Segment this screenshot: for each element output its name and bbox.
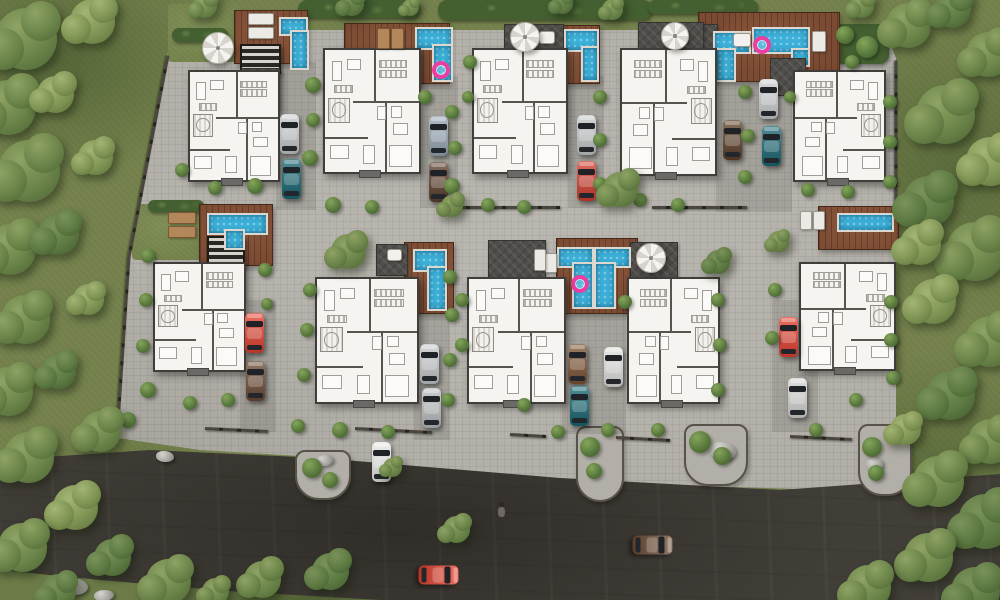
- car-hood-highlight: [579, 116, 595, 120]
- entrance-step: [834, 367, 856, 375]
- tree-canopy: [109, 534, 134, 559]
- interior-wall: [844, 264, 846, 308]
- car-roof: [572, 401, 587, 413]
- stair-rail: [694, 103, 708, 119]
- car-roof: [284, 174, 299, 186]
- car-windshield: [421, 352, 437, 358]
- furniture-kitchen-cabinets: [526, 60, 554, 68]
- furniture-bathroom-fixture: [818, 312, 829, 322]
- furniture-kitchen-cabinets: [634, 60, 662, 68]
- furniture-bathtub: [671, 375, 683, 394]
- bush-4: [247, 178, 263, 194]
- bush-32: [856, 36, 878, 58]
- patio-table: [733, 33, 751, 47]
- car-rear-window: [570, 376, 586, 380]
- bush-34: [845, 55, 859, 69]
- interior-wall: [190, 149, 230, 151]
- car-windshield: [569, 352, 585, 358]
- bush-76: [713, 447, 731, 465]
- bush-63: [651, 423, 665, 437]
- entrance-step: [359, 170, 381, 178]
- car-roof: [606, 362, 621, 374]
- car-rear-window: [248, 393, 264, 397]
- car-8: [759, 79, 778, 119]
- bush-15: [481, 198, 495, 212]
- tree-29: [882, 0, 934, 52]
- car-2: [282, 159, 301, 199]
- car-windshield: [247, 369, 263, 375]
- interior-wall: [155, 339, 196, 341]
- furniture-bed: [636, 375, 658, 397]
- car-16: [604, 347, 623, 387]
- car-roof: [579, 130, 594, 142]
- car-12: [420, 344, 439, 384]
- house-5[interactable]: [793, 70, 886, 182]
- house-1[interactable]: [188, 70, 280, 182]
- tree-14: [0, 428, 58, 488]
- sun-lounger: [812, 31, 826, 52]
- car-roof: [725, 135, 740, 147]
- car-rear-window: [636, 537, 640, 553]
- house-2[interactable]: [323, 48, 421, 174]
- bush-35: [141, 249, 155, 263]
- car-rear-window: [422, 376, 438, 380]
- car-hood-highlight: [761, 80, 777, 84]
- tree-20: [240, 558, 284, 600]
- furniture-bed: [385, 375, 409, 397]
- tree-canopy: [165, 554, 194, 583]
- furniture-chairs: [199, 103, 217, 110]
- furniture-bathroom-fixture: [538, 106, 549, 118]
- floor-plan: [474, 50, 566, 172]
- furniture-desk: [389, 353, 405, 365]
- house-4[interactable]: [620, 48, 717, 176]
- bush-69: [884, 333, 898, 347]
- bush-10: [445, 105, 459, 119]
- tree-5: [0, 136, 64, 208]
- tree-canopy: [19, 518, 50, 549]
- floor-plan: [795, 72, 884, 180]
- furniture-desk: [253, 137, 267, 148]
- tree-25: [400, 0, 420, 18]
- tree-canopy: [346, 230, 368, 252]
- tree-46: [887, 412, 923, 448]
- bush-71: [302, 458, 322, 478]
- pool-1-arm: [290, 30, 309, 70]
- tree-24: [338, 0, 366, 18]
- car-windshield: [789, 386, 805, 392]
- car-windshield: [780, 325, 796, 331]
- interior-wall: [474, 137, 516, 139]
- car-15: [568, 344, 587, 384]
- staircase: [328, 98, 350, 123]
- tree-canopy: [324, 246, 347, 269]
- furniture-desk: [393, 123, 408, 135]
- bush-25: [801, 183, 815, 197]
- furniture-sofa: [859, 271, 873, 281]
- furniture-sofa: [680, 59, 694, 71]
- bush-70: [884, 295, 898, 309]
- car-windshield: [578, 169, 594, 175]
- furniture-couch: [871, 346, 890, 359]
- car-roof: [282, 129, 297, 141]
- furniture-bathroom-fixture: [391, 106, 402, 118]
- furniture-bed: [802, 156, 824, 175]
- tree-6: [75, 138, 115, 178]
- car-rear-window: [725, 152, 741, 156]
- entrance-step: [353, 400, 375, 408]
- tree-canopy: [29, 227, 57, 255]
- floor-plan: [801, 264, 894, 369]
- tree-canopy: [972, 562, 1000, 593]
- entrance-step: [187, 368, 209, 376]
- tree-31: [962, 29, 1000, 81]
- house-9[interactable]: [627, 277, 720, 404]
- bush-58: [601, 423, 615, 437]
- bush-41: [221, 393, 235, 407]
- stair-rail: [161, 310, 174, 324]
- tree-26: [550, 0, 574, 16]
- tree-canopy: [934, 450, 968, 484]
- furniture-bathroom-fixture: [387, 336, 399, 348]
- tree-23: [191, 0, 219, 20]
- tree-canopy: [891, 237, 919, 265]
- staircase: [158, 305, 179, 327]
- parasol-umbrella: [661, 22, 689, 50]
- tree-33: [962, 134, 1000, 190]
- furniture-desk: [639, 353, 653, 365]
- furniture-kitchen-cabinets: [379, 60, 407, 68]
- tree-21: [308, 550, 352, 594]
- furniture-bathroom-fixture: [833, 312, 842, 325]
- car-hood-highlight: [668, 537, 672, 553]
- floor-plan: [190, 72, 278, 180]
- furniture-bathroom-fixture: [536, 336, 548, 348]
- bush-31: [836, 26, 854, 44]
- car-rear-window: [422, 567, 426, 583]
- house-8[interactable]: [467, 277, 566, 404]
- tree-canopy: [137, 574, 167, 600]
- tree-canopy: [71, 424, 99, 452]
- car-9: [762, 126, 781, 166]
- furniture-bathtub: [507, 375, 519, 394]
- car-roof: [761, 94, 776, 106]
- bush-14: [462, 91, 474, 103]
- furniture-chairs: [479, 315, 498, 323]
- car-18: [779, 317, 798, 357]
- interior-wall: [670, 279, 672, 331]
- car-roof: [646, 538, 658, 553]
- furniture-couch: [322, 375, 342, 389]
- interior-wall: [317, 366, 363, 368]
- tree-canopy: [61, 14, 91, 44]
- car-hood-highlight: [431, 163, 447, 167]
- tree-canopy: [259, 556, 284, 581]
- bush-53: [291, 419, 305, 433]
- tree-30: [930, 0, 974, 32]
- bush-27: [883, 95, 897, 109]
- house-3[interactable]: [472, 48, 568, 174]
- furniture-desk: [219, 328, 233, 338]
- house-10[interactable]: [799, 262, 896, 371]
- house-6[interactable]: [153, 262, 246, 372]
- car-hood-highlight: [422, 345, 438, 349]
- tree-canopy: [379, 464, 392, 477]
- car-17: [570, 386, 589, 426]
- interior-wall: [522, 50, 524, 101]
- staircase: [861, 114, 882, 137]
- bush-38: [140, 382, 156, 398]
- bush-78: [868, 465, 884, 481]
- furniture-sofa: [877, 273, 887, 291]
- car-rear-window: [781, 349, 797, 353]
- tree-52: [440, 514, 472, 546]
- furniture-couch: [474, 375, 493, 389]
- furniture-desk: [812, 327, 827, 337]
- bush-30: [784, 91, 796, 103]
- bush-66: [809, 423, 823, 437]
- furniture-bed: [537, 145, 559, 167]
- sun-lounger: [248, 27, 274, 39]
- car-hood-highlight: [606, 348, 622, 352]
- car-windshield: [724, 128, 740, 134]
- tree-42: [953, 490, 1000, 554]
- furniture-sofa: [491, 288, 505, 300]
- car-rear-window: [282, 146, 298, 150]
- furniture-couch: [159, 347, 177, 360]
- tree-canopy: [947, 366, 978, 397]
- floor-plan: [317, 279, 417, 402]
- tree-2: [66, 0, 118, 48]
- interior-wall: [843, 149, 884, 151]
- furniture-bathroom-fixture: [660, 336, 669, 350]
- tree-canopy: [213, 575, 231, 593]
- car-windshield: [445, 567, 451, 583]
- furniture-bathroom-fixture: [525, 106, 534, 120]
- tree-canopy: [454, 513, 472, 531]
- tree-10: [70, 282, 106, 318]
- sun-lounger: [248, 13, 274, 25]
- car-rear-window: [284, 191, 300, 195]
- car-windshield: [283, 167, 299, 173]
- furniture-sofa: [332, 61, 342, 81]
- furniture-sofa: [698, 61, 708, 82]
- bush-57: [551, 425, 565, 439]
- pool-10: [837, 213, 894, 232]
- car-windshield: [430, 170, 446, 176]
- sun-lounger: [545, 253, 557, 273]
- furniture-chairs: [691, 315, 709, 323]
- car-rear-window: [247, 345, 263, 349]
- furniture-couch: [862, 156, 880, 169]
- tree-canopy: [764, 238, 778, 252]
- tree-canopy: [5, 362, 36, 393]
- car-windshield: [605, 355, 621, 361]
- furniture-chairs: [687, 86, 706, 94]
- stair-rail: [873, 309, 887, 323]
- pool-9-arm: [594, 262, 616, 309]
- staircase: [472, 327, 494, 352]
- staircase: [320, 327, 343, 352]
- furniture-kitchen-cabinets: [374, 299, 404, 307]
- tree-canopy: [618, 168, 640, 190]
- bush-75: [689, 431, 711, 453]
- furniture-bathroom-fixture: [645, 336, 656, 348]
- parasol-umbrella: [510, 22, 540, 52]
- furniture-bathroom-fixture: [654, 107, 663, 121]
- bush-18: [593, 133, 607, 147]
- tree-48: [600, 170, 640, 210]
- bush-52: [381, 425, 395, 439]
- bush-11: [448, 141, 462, 155]
- furniture-chairs: [334, 85, 353, 93]
- tree-canopy: [72, 480, 101, 509]
- car-rear-window: [761, 111, 777, 115]
- car-10: [245, 313, 264, 353]
- furniture-kitchen-cabinets: [640, 299, 667, 307]
- car-roof: [570, 359, 585, 371]
- bush-44: [303, 283, 317, 297]
- landscape-rock: [93, 589, 114, 600]
- furniture-desk: [540, 123, 555, 135]
- car-hood-highlight: [725, 121, 741, 125]
- tree-38: [960, 312, 1000, 372]
- sun-lounger: [168, 226, 196, 238]
- tree-canopy: [930, 274, 959, 303]
- car-hood-highlight: [579, 162, 595, 166]
- furniture-bathroom-fixture: [826, 122, 835, 135]
- car-windshield: [571, 394, 587, 400]
- furniture-bathroom-fixture: [252, 122, 263, 133]
- fence-3: [452, 206, 560, 209]
- tree-8: [34, 211, 82, 259]
- car-rear-window: [790, 410, 806, 414]
- car-hood-highlight: [431, 117, 447, 121]
- bush-72: [322, 472, 338, 488]
- tree-canopy: [894, 549, 926, 581]
- bush-28: [883, 135, 897, 149]
- site-plan: [0, 0, 1000, 600]
- furniture-chairs: [483, 85, 502, 93]
- staircase: [193, 114, 213, 137]
- furniture-bathroom-fixture: [238, 122, 247, 135]
- furniture-bed: [629, 147, 651, 169]
- bush-47: [443, 270, 457, 284]
- floor-plan: [629, 279, 718, 402]
- furniture-sofa: [495, 59, 509, 71]
- furniture-sofa: [324, 290, 335, 310]
- tree-canopy: [71, 152, 94, 175]
- bush-45: [300, 323, 314, 337]
- tree-canopy: [398, 5, 410, 17]
- furniture-bathroom-fixture: [377, 106, 387, 120]
- bush-24: [738, 170, 752, 184]
- furniture-bathroom-fixture: [639, 107, 650, 119]
- tree-canopy: [22, 290, 53, 321]
- bush-9: [418, 90, 432, 104]
- car-windshield: [760, 87, 776, 93]
- furniture-bathroom-fixture: [217, 313, 228, 323]
- furniture-couch: [194, 156, 212, 169]
- tree-canopy: [957, 47, 987, 77]
- interior-wall: [369, 279, 371, 331]
- sun-lounger: [377, 28, 390, 49]
- tree-18: [142, 556, 194, 600]
- interior-wall: [325, 137, 368, 139]
- car-roof: [247, 328, 262, 340]
- bush-59: [618, 295, 632, 309]
- tree-53: [381, 457, 403, 479]
- parasol-umbrella: [636, 243, 666, 273]
- furniture-bed: [216, 347, 238, 366]
- tree-canopy: [877, 18, 907, 48]
- furniture-bathroom-fixture: [204, 313, 213, 326]
- stair-rail: [480, 102, 494, 118]
- furniture-sofa: [210, 80, 223, 91]
- tree-9: [0, 292, 53, 348]
- interior-wall: [836, 72, 838, 117]
- staircase: [691, 98, 713, 124]
- floor-plan: [155, 264, 244, 370]
- car-19: [788, 378, 807, 418]
- bush-40: [261, 298, 273, 310]
- tree-canopy: [924, 170, 958, 204]
- tree-canopy: [903, 411, 923, 431]
- staircase: [695, 327, 716, 352]
- tree-27: [600, 0, 624, 22]
- bush-48: [445, 308, 459, 322]
- interior-wall: [518, 279, 520, 331]
- interior-wall: [665, 50, 667, 102]
- fence-4: [652, 206, 747, 209]
- bush-62: [711, 383, 725, 397]
- furniture-couch: [479, 145, 498, 159]
- tree-45: [947, 564, 1000, 600]
- car-roof: [764, 141, 779, 153]
- tree-canopy: [925, 528, 956, 559]
- pool-4-arm: [715, 48, 736, 82]
- bush-73: [580, 437, 600, 457]
- furniture-bathtub: [511, 145, 523, 164]
- bush-49: [443, 353, 457, 367]
- interior-wall: [469, 366, 513, 368]
- tree-canopy: [52, 71, 77, 96]
- stair-rail: [698, 332, 711, 348]
- furniture-sofa: [347, 59, 361, 71]
- bush-67: [849, 393, 863, 407]
- tree-canopy: [93, 136, 115, 158]
- car-roof: [579, 176, 594, 188]
- furniture-kitchen-cabinets: [813, 281, 841, 288]
- tree-11: [0, 364, 36, 420]
- car-roof: [432, 568, 444, 583]
- tree-canopy: [86, 281, 106, 301]
- pool-float-ring: [432, 61, 450, 79]
- pedestrian: [498, 507, 505, 517]
- car-roof: [781, 332, 796, 344]
- house-7[interactable]: [315, 277, 419, 404]
- furniture-kitchen-cabinets: [523, 289, 552, 297]
- parasol-umbrella: [202, 32, 234, 64]
- car-roof: [248, 376, 263, 388]
- bush-3: [302, 150, 318, 166]
- floor-plan: [622, 50, 715, 174]
- furniture-bathtub: [357, 375, 370, 394]
- car-13: [422, 388, 441, 428]
- furniture-sofa: [480, 61, 490, 81]
- car-rear-window: [764, 158, 780, 162]
- staircase: [477, 98, 498, 123]
